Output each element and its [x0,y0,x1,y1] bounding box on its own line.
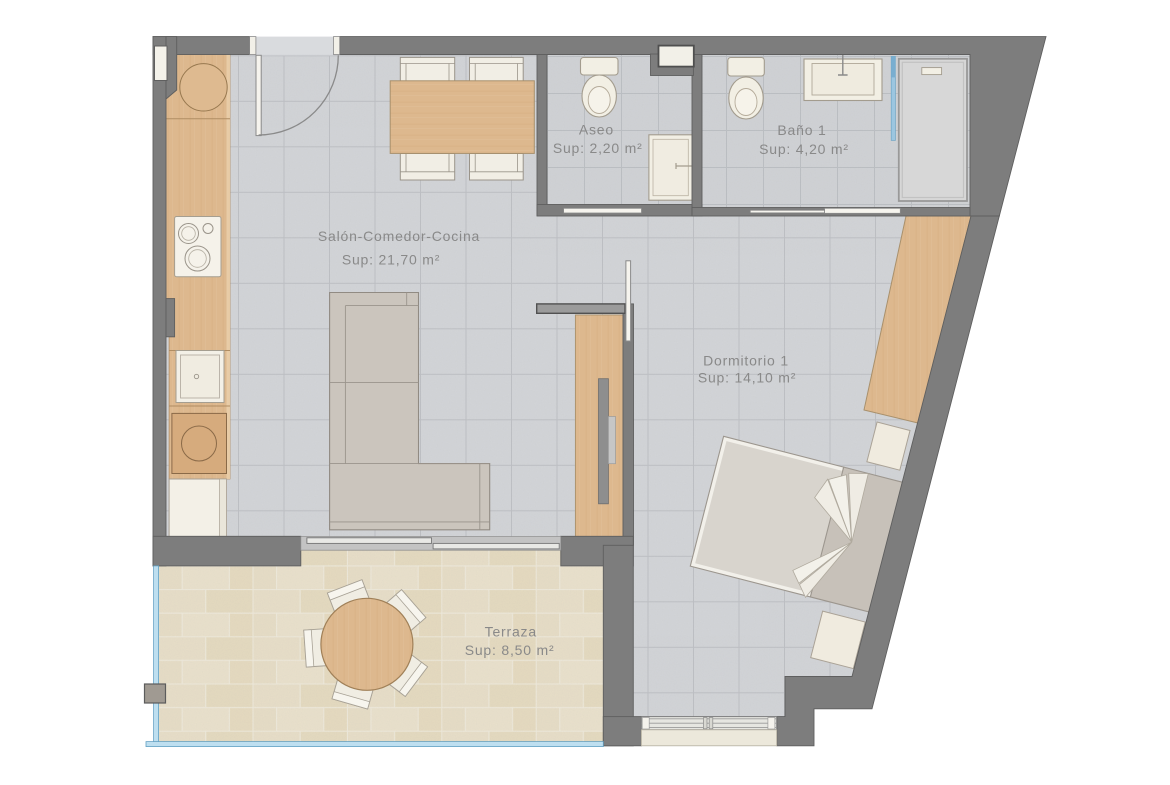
svg-text:Sup: 2,20 m²: Sup: 2,20 m² [553,140,643,156]
svg-text:Aseo: Aseo [579,122,614,138]
svg-text:Terraza: Terraza [485,623,537,639]
svg-text:Sup: 14,10 m²: Sup: 14,10 m² [698,370,796,386]
svg-text:Sup: 8,50 m²: Sup: 8,50 m² [465,642,555,658]
svg-text:Salón-Comedor-Cocina: Salón-Comedor-Cocina [318,228,480,244]
svg-text:Sup: 4,20 m²: Sup: 4,20 m² [759,141,849,157]
svg-text:Baño 1: Baño 1 [777,122,826,138]
svg-text:Sup: 21,70 m²: Sup: 21,70 m² [342,252,440,268]
svg-text:Dormitorio 1: Dormitorio 1 [703,352,789,368]
